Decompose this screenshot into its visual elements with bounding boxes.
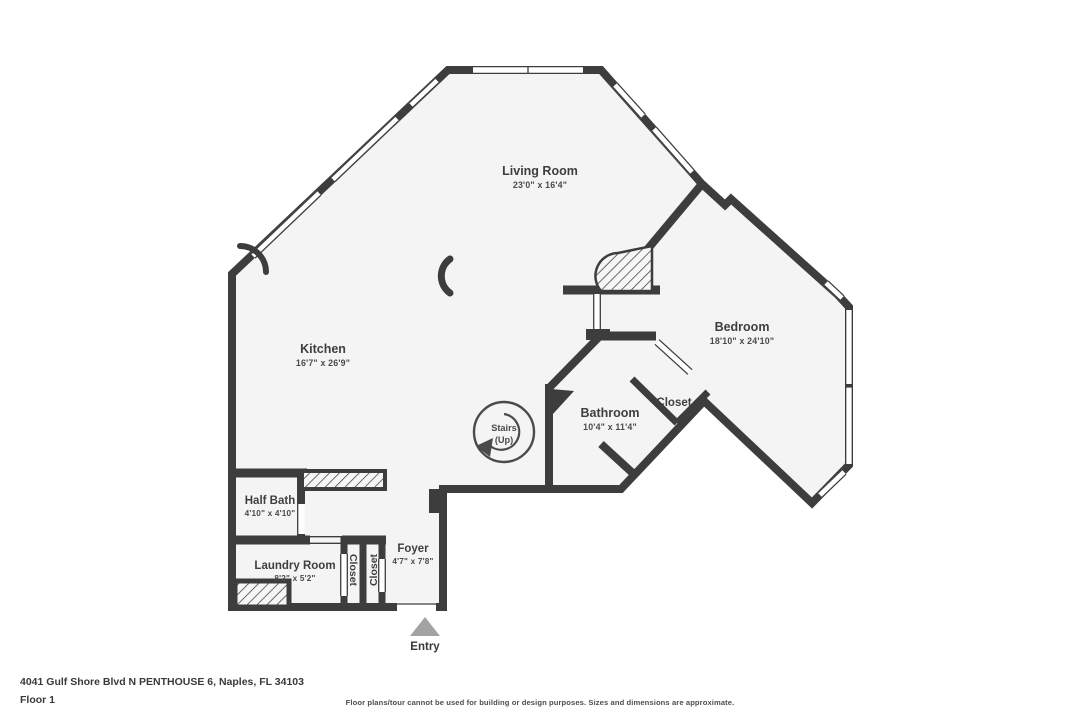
room-label-kitchen: Kitchen 16'7" x 26'9" xyxy=(296,342,350,368)
stairs-label-line1: Stairs xyxy=(491,423,517,433)
room-name: Closet xyxy=(347,554,359,587)
kitchen-counter-hatch xyxy=(302,471,385,489)
laundry-fixture-hatch xyxy=(235,581,289,607)
room-dims: 16'7" x 26'9" xyxy=(296,358,350,368)
room-dims: 8'2" x 5'2" xyxy=(274,574,315,583)
room-dims: 10'4" x 11'4" xyxy=(583,422,637,432)
room-label-foyer: Foyer 4'7" x 7'8" xyxy=(392,543,433,566)
room-label-bathroom: Bathroom 10'4" x 11'4" xyxy=(580,406,639,432)
room-dims: 18'10" x 24'10" xyxy=(710,336,774,346)
room-label-living-room: Living Room 23'0" x 16'4" xyxy=(502,164,578,190)
entry-label-text: Entry xyxy=(410,641,440,653)
room-label-hall-closet: Closet xyxy=(656,397,691,409)
entry-arrow-icon xyxy=(410,617,440,636)
room-label-closet-1: Closet xyxy=(347,554,359,587)
room-name: Kitchen xyxy=(300,342,346,356)
floor-plan-canvas: Stairs (Up) Living Room 23'0" x 16'4" Ki… xyxy=(0,0,1080,720)
room-label-closet-2: Closet xyxy=(368,553,380,586)
room-label-half-bath: Half Bath 4'10" x 4'10" xyxy=(245,495,296,518)
room-name: Closet xyxy=(368,553,380,586)
room-name: Bathroom xyxy=(580,406,639,420)
entry-label: Entry xyxy=(410,641,440,653)
room-name: Closet xyxy=(656,397,691,409)
room-name: Half Bath xyxy=(245,495,295,507)
room-label-bedroom: Bedroom 18'10" x 24'10" xyxy=(710,320,774,346)
stairs-label-line2: (Up) xyxy=(495,435,513,445)
room-dims: 4'10" x 4'10" xyxy=(245,509,296,518)
address-line: 4041 Gulf Shore Blvd N PENTHOUSE 6, Napl… xyxy=(20,676,304,688)
disclaimer-text: Floor plans/tour cannot be used for buil… xyxy=(0,698,1080,707)
room-name: Foyer xyxy=(397,543,429,555)
room-name: Bedroom xyxy=(715,320,770,334)
room-dims: 23'0" x 16'4" xyxy=(513,180,567,190)
room-name: Living Room xyxy=(502,164,578,178)
room-dims: 4'7" x 7'8" xyxy=(392,557,433,566)
room-name: Laundry Room xyxy=(254,560,335,572)
